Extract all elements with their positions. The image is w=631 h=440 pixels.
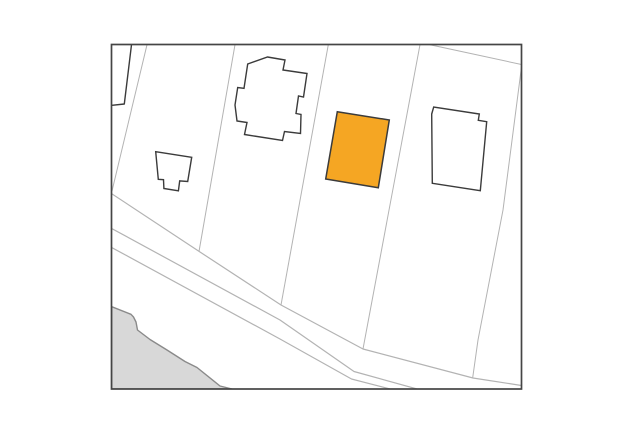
shaded-terrain-area [112, 307, 232, 389]
building-small-house [156, 152, 192, 191]
map-canvas [0, 0, 631, 440]
building-outline-clipped-corner [112, 45, 132, 106]
building-cross-shaped [235, 57, 307, 141]
parcel-map-panel [0, 0, 631, 440]
map-features-layer [112, 45, 522, 389]
parcel-line-top-right-corner [430, 45, 522, 65]
parcel-line-left-of-cross-building [199, 45, 235, 252]
building-highlighted[interactable] [326, 112, 390, 188]
parcel-line-right-of-highlight [363, 45, 420, 349]
map-frame [112, 45, 522, 390]
building-east-notched [432, 107, 487, 191]
